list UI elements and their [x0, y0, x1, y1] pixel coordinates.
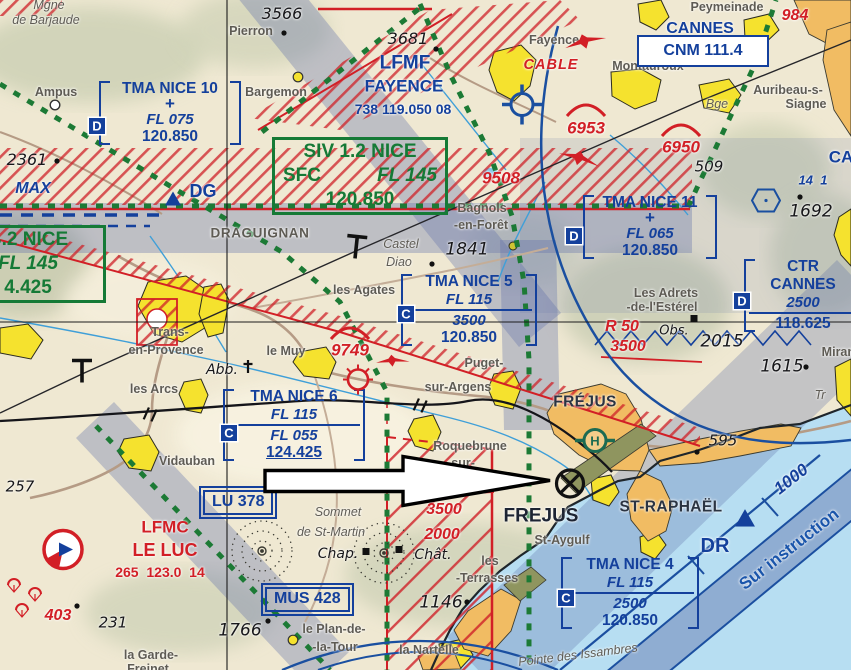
parachute-icon-2 [27, 586, 44, 608]
parachute-icon-3 [14, 602, 31, 624]
dg-vor-triangle-icon [165, 192, 181, 211]
spot-dot-9 [74, 596, 80, 614]
chapel-square-icon-2 [396, 540, 403, 558]
pylon-icon-2 [70, 357, 94, 390]
cable-arc-icon-1 [565, 101, 607, 123]
spot-dot-2 [433, 39, 439, 57]
cable-arc-icon-3 [329, 324, 371, 346]
town-dot-yellow-2 [292, 70, 304, 88]
spot-dot-3 [54, 151, 60, 169]
closed-airfield-icon [551, 465, 589, 508]
svg-text:H: H [590, 434, 599, 449]
heliport-icon: H [575, 426, 615, 461]
pointer-arrow [262, 453, 554, 516]
rail-tick-icon-1 [140, 406, 159, 427]
cable-arc-icon-2 [660, 121, 702, 143]
abbey-cross-icon [242, 359, 255, 379]
aeronautical-chart-canvas[interactable]: Mgnede Barjaude3566Pierron3681FayencePey… [0, 0, 851, 670]
glider-site-icon [500, 83, 544, 132]
rail-tick-icon-2 [410, 397, 429, 418]
military-airfield-icon [38, 525, 88, 580]
spot-dot-8 [265, 611, 271, 629]
glider-icon-1 [560, 25, 611, 63]
town-dot-yellow-1 [287, 633, 299, 651]
spot-dot-10 [429, 254, 435, 272]
spot-dot-6 [694, 442, 700, 460]
spot-dot-1 [281, 23, 287, 41]
obstacle-square-icon [691, 309, 698, 327]
glider-icon-2 [554, 143, 605, 178]
vfr-hexagon-icon [751, 189, 781, 218]
glider-icon-3 [374, 351, 413, 375]
town-dot-white-1 [49, 98, 61, 116]
spot-dot-7 [464, 592, 470, 610]
spot-dot-4 [797, 187, 803, 205]
parachute-icon-1 [6, 577, 23, 599]
chapel-square-icon-1 [363, 542, 370, 560]
spot-dot-5 [803, 357, 809, 375]
reporting-triangle-icon [735, 509, 755, 533]
pylon-icon-1 [342, 231, 369, 266]
icon-layer: H [0, 0, 851, 670]
private-airfield-icon [341, 363, 375, 402]
